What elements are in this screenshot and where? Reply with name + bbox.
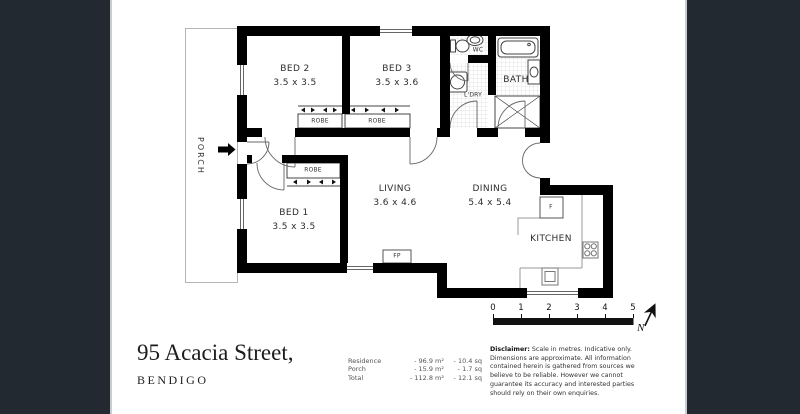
- area-imperial: - 10.4 sq: [444, 357, 482, 365]
- area-row: Total - 112.8 m² - 12.1 sq: [348, 374, 482, 382]
- scale-bar: 0 1 2 3 4 5: [490, 304, 640, 336]
- scale-tick-label: 3: [574, 303, 579, 313]
- scale-tick-label: 0: [490, 303, 495, 313]
- floor-plan: BED 2 3.5 x 3.5 BED 3 3.5 x 3.6 BED 1 3.…: [185, 18, 625, 310]
- north-label: N: [637, 322, 644, 334]
- fireplace-label: FP: [393, 253, 400, 260]
- entry-arrow-icon: [218, 143, 236, 156]
- toilet: [451, 40, 470, 52]
- room-label-bed1: BED 1 3.5 x 3.5: [272, 206, 315, 234]
- area-metric: - 96.9 m²: [400, 357, 444, 365]
- room-label-living: LIVING 3.6 x 4.6: [373, 182, 416, 210]
- room-dims: 3.5 x 3.5: [273, 76, 316, 90]
- area-label: Total: [348, 374, 400, 382]
- room-name: BED 3: [375, 62, 418, 76]
- area-imperial: - 1.7 sq: [444, 365, 482, 373]
- address-suburb: BENDIGO: [137, 373, 293, 388]
- area-row: Residence - 96.9 m² - 10.4 sq: [348, 357, 482, 365]
- room-label-bed2: BED 2 3.5 x 3.5: [273, 62, 316, 90]
- disclaimer-text: Scale in metres. Indicative only. Dimens…: [490, 346, 635, 397]
- scale-bar-graphic: [490, 314, 640, 327]
- wc-basin: [467, 35, 483, 46]
- room-dims: 3.6 x 4.6: [373, 196, 416, 210]
- room-label-wc: WC: [473, 47, 484, 54]
- room-dims: 3.5 x 3.5: [272, 220, 315, 234]
- room-name: LIVING: [373, 182, 416, 196]
- room-label-porch: PORCH: [196, 137, 205, 175]
- scale-tick-label: 2: [546, 303, 551, 313]
- robe-label: ROBE: [311, 118, 329, 125]
- left-dark-panel: [0, 0, 112, 414]
- floorplan-page: BED 2 3.5 x 3.5 BED 3 3.5 x 3.6 BED 1 3.…: [0, 0, 800, 414]
- porch-outline: [186, 29, 238, 283]
- room-dims: 3.5 x 3.6: [375, 76, 418, 90]
- robe-label: ROBE: [368, 118, 386, 125]
- robes: [287, 106, 410, 186]
- fridge-label: F: [549, 204, 553, 211]
- area-label: Porch: [348, 365, 400, 373]
- area-metric: - 112.8 m²: [400, 374, 444, 382]
- room-name: BED 1: [272, 206, 315, 220]
- address-street: 95 Acacia Street,: [137, 340, 293, 366]
- vanity-basin: [528, 60, 540, 84]
- robe-label: ROBE: [304, 167, 322, 174]
- kitchen-sink: [542, 268, 558, 285]
- area-imperial: - 12.1 sq: [444, 374, 482, 382]
- room-label-bath: BATH: [503, 73, 529, 87]
- room-label-laundry: L'DRY: [464, 92, 482, 99]
- disclaimer: Disclaimer: Scale in metres. Indicative …: [490, 346, 643, 398]
- area-table: Residence - 96.9 m² - 10.4 sq Porch - 15…: [348, 357, 482, 382]
- right-dark-panel: [685, 0, 800, 414]
- scale-tick-label: 4: [602, 303, 607, 313]
- bathtub: [498, 38, 538, 57]
- stove: [583, 242, 598, 258]
- room-label-dining: DINING 5.4 x 5.4: [468, 182, 511, 210]
- scale-tick-label: 1: [518, 303, 523, 313]
- scale-tick-label: 5: [630, 303, 635, 313]
- shower: [495, 96, 540, 128]
- north-indicator: N: [637, 301, 663, 339]
- laundry-trough: [448, 72, 467, 92]
- area-metric: - 15.9 m²: [400, 365, 444, 373]
- room-label-kitchen: KITCHEN: [530, 232, 572, 246]
- address-block: 95 Acacia Street, BENDIGO: [137, 340, 293, 388]
- room-dims: 5.4 x 5.4: [468, 196, 511, 210]
- area-label: Residence: [348, 357, 400, 365]
- disclaimer-label: Disclaimer:: [490, 346, 530, 353]
- area-row: Porch - 15.9 m² - 1.7 sq: [348, 365, 482, 373]
- room-name: BED 2: [273, 62, 316, 76]
- room-name: DINING: [468, 182, 511, 196]
- room-label-bed3: BED 3 3.5 x 3.6: [375, 62, 418, 90]
